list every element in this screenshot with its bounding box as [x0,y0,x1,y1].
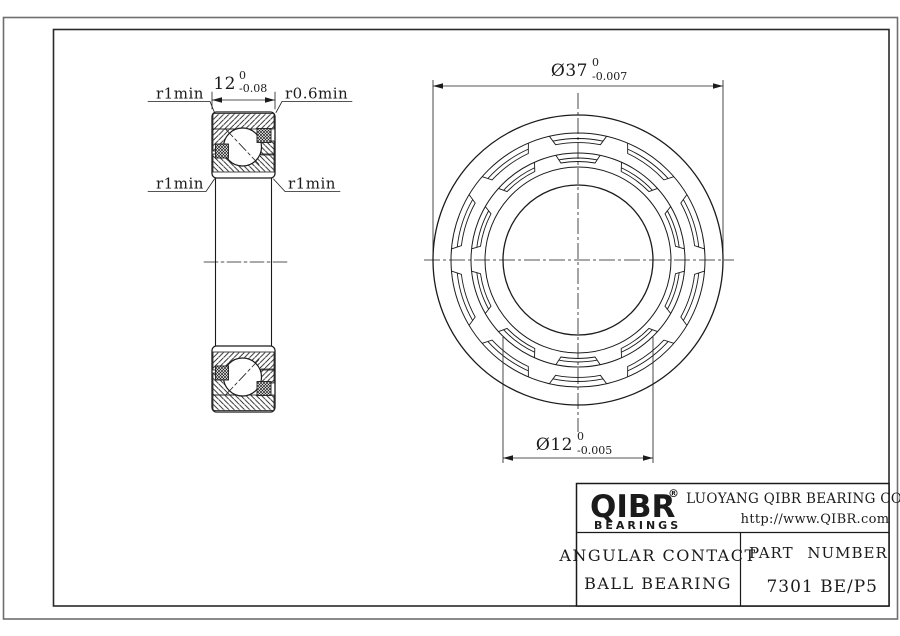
dim-width-upper-tol: 0 [239,69,246,82]
product-name-line2: BALL BEARING [584,574,732,593]
fillet-label-mid-left: r1min [156,175,204,193]
section-view: 12 0 -0.08 r1min r0.6min r1min r1min [148,69,352,412]
part-number-label: PART NUMBER [749,544,888,562]
fillet-label-top-left: r1min [156,85,204,103]
cage-pocket [452,271,476,325]
bearing-drawing-svg: 12 0 -0.08 r1min r0.6min r1min r1min [0,0,900,636]
section-bottom-block [212,346,275,412]
dim-width-lower-tol: -0.08 [239,82,267,95]
front-view: Ø37 0 -0.007 Ø12 0 -0.005 [424,56,734,463]
cage-pocket [681,195,705,249]
dim-bore-upper-tol: 0 [577,430,584,443]
cage-pocket [482,340,528,377]
cage-pocket [627,340,673,377]
dim-od-upper-tol: 0 [592,56,599,69]
section-top-block [212,112,275,178]
cage-section-left [216,144,229,158]
cage-pocket [499,162,535,191]
dim-od-lower-tol: -0.007 [592,70,627,83]
cage-pocket [627,143,673,180]
company-name: LUOYANG QIBR BEARING CO., LTD [686,491,900,507]
cage-pocket [482,143,528,180]
logo-subtext: BEARINGS [594,519,681,532]
cage-pocket [472,271,491,313]
dim-od-value: Ø37 [551,61,588,81]
drawing-sheet: 12 0 -0.08 r1min r0.6min r1min r1min [0,0,900,636]
cage-section-right [257,129,271,143]
company-logo: QIBR ® BEARINGS [590,487,681,532]
cage-pocket [621,162,657,191]
arrow-left-icon [212,97,222,103]
cage-pocket [665,271,684,313]
dim-bore-lower-tol: -0.005 [577,444,612,457]
fillet-label-top-right: r0.6min [285,85,348,103]
cage-pocket [472,207,491,249]
product-name-line1: ANGULAR CONTACT [558,546,756,565]
registered-mark-icon: ® [668,487,679,500]
arrow-right-icon [265,97,275,103]
cage-pocket [681,271,705,325]
cage-pocket [621,328,657,357]
dim-bore-value: Ø12 [536,435,573,455]
dim-width-value: 12 [213,74,236,94]
title-block: QIBR ® BEARINGS LUOYANG QIBR BEARING CO.… [558,484,900,607]
cage-pocket [499,328,535,357]
company-website: http://www.QIBR.com [741,512,890,527]
cage-pocket [665,207,684,249]
part-number-value: 7301 BE/P5 [766,577,878,597]
fillet-label-mid-right: r1min [288,175,336,193]
cage-pocket [452,195,476,249]
